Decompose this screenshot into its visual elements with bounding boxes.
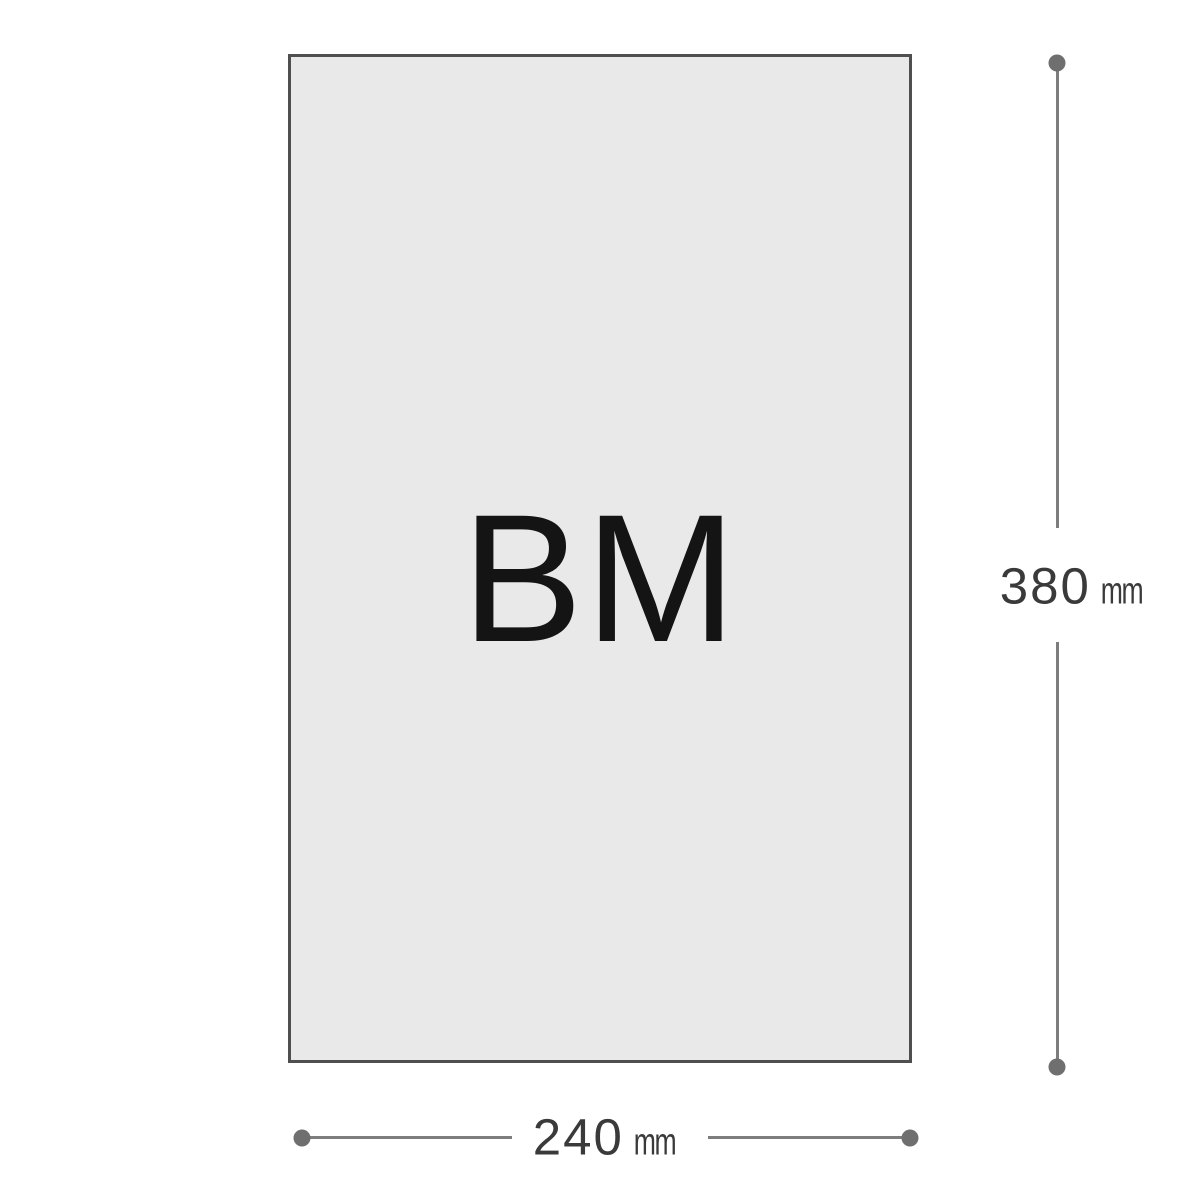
height-dimension-value: 380 bbox=[1000, 561, 1091, 612]
size-rectangle-label: BM bbox=[462, 487, 739, 669]
width-dimension-endpoint-left-dot bbox=[294, 1130, 311, 1147]
width-dimension-unit: mm bbox=[634, 1124, 676, 1162]
height-dimension-line-top bbox=[1056, 63, 1059, 528]
height-dimension-unit: mm bbox=[1101, 573, 1143, 611]
width-dimension-line-left bbox=[302, 1136, 512, 1139]
width-dimension-endpoint-right-dot bbox=[902, 1130, 919, 1147]
height-dimension-label: 380 mm bbox=[1000, 561, 1160, 612]
size-rectangle: BM bbox=[288, 54, 912, 1063]
height-dimension-endpoint-top-dot bbox=[1049, 55, 1066, 72]
height-dimension-endpoint-bottom-dot bbox=[1049, 1059, 1066, 1076]
size-diagram-canvas: BM 380 mm 240 mm bbox=[0, 0, 1200, 1200]
width-dimension-value: 240 bbox=[533, 1112, 624, 1163]
width-dimension-label: 240 mm bbox=[533, 1112, 693, 1163]
width-dimension-line-right bbox=[708, 1136, 910, 1139]
height-dimension-line-bottom bbox=[1056, 642, 1059, 1067]
